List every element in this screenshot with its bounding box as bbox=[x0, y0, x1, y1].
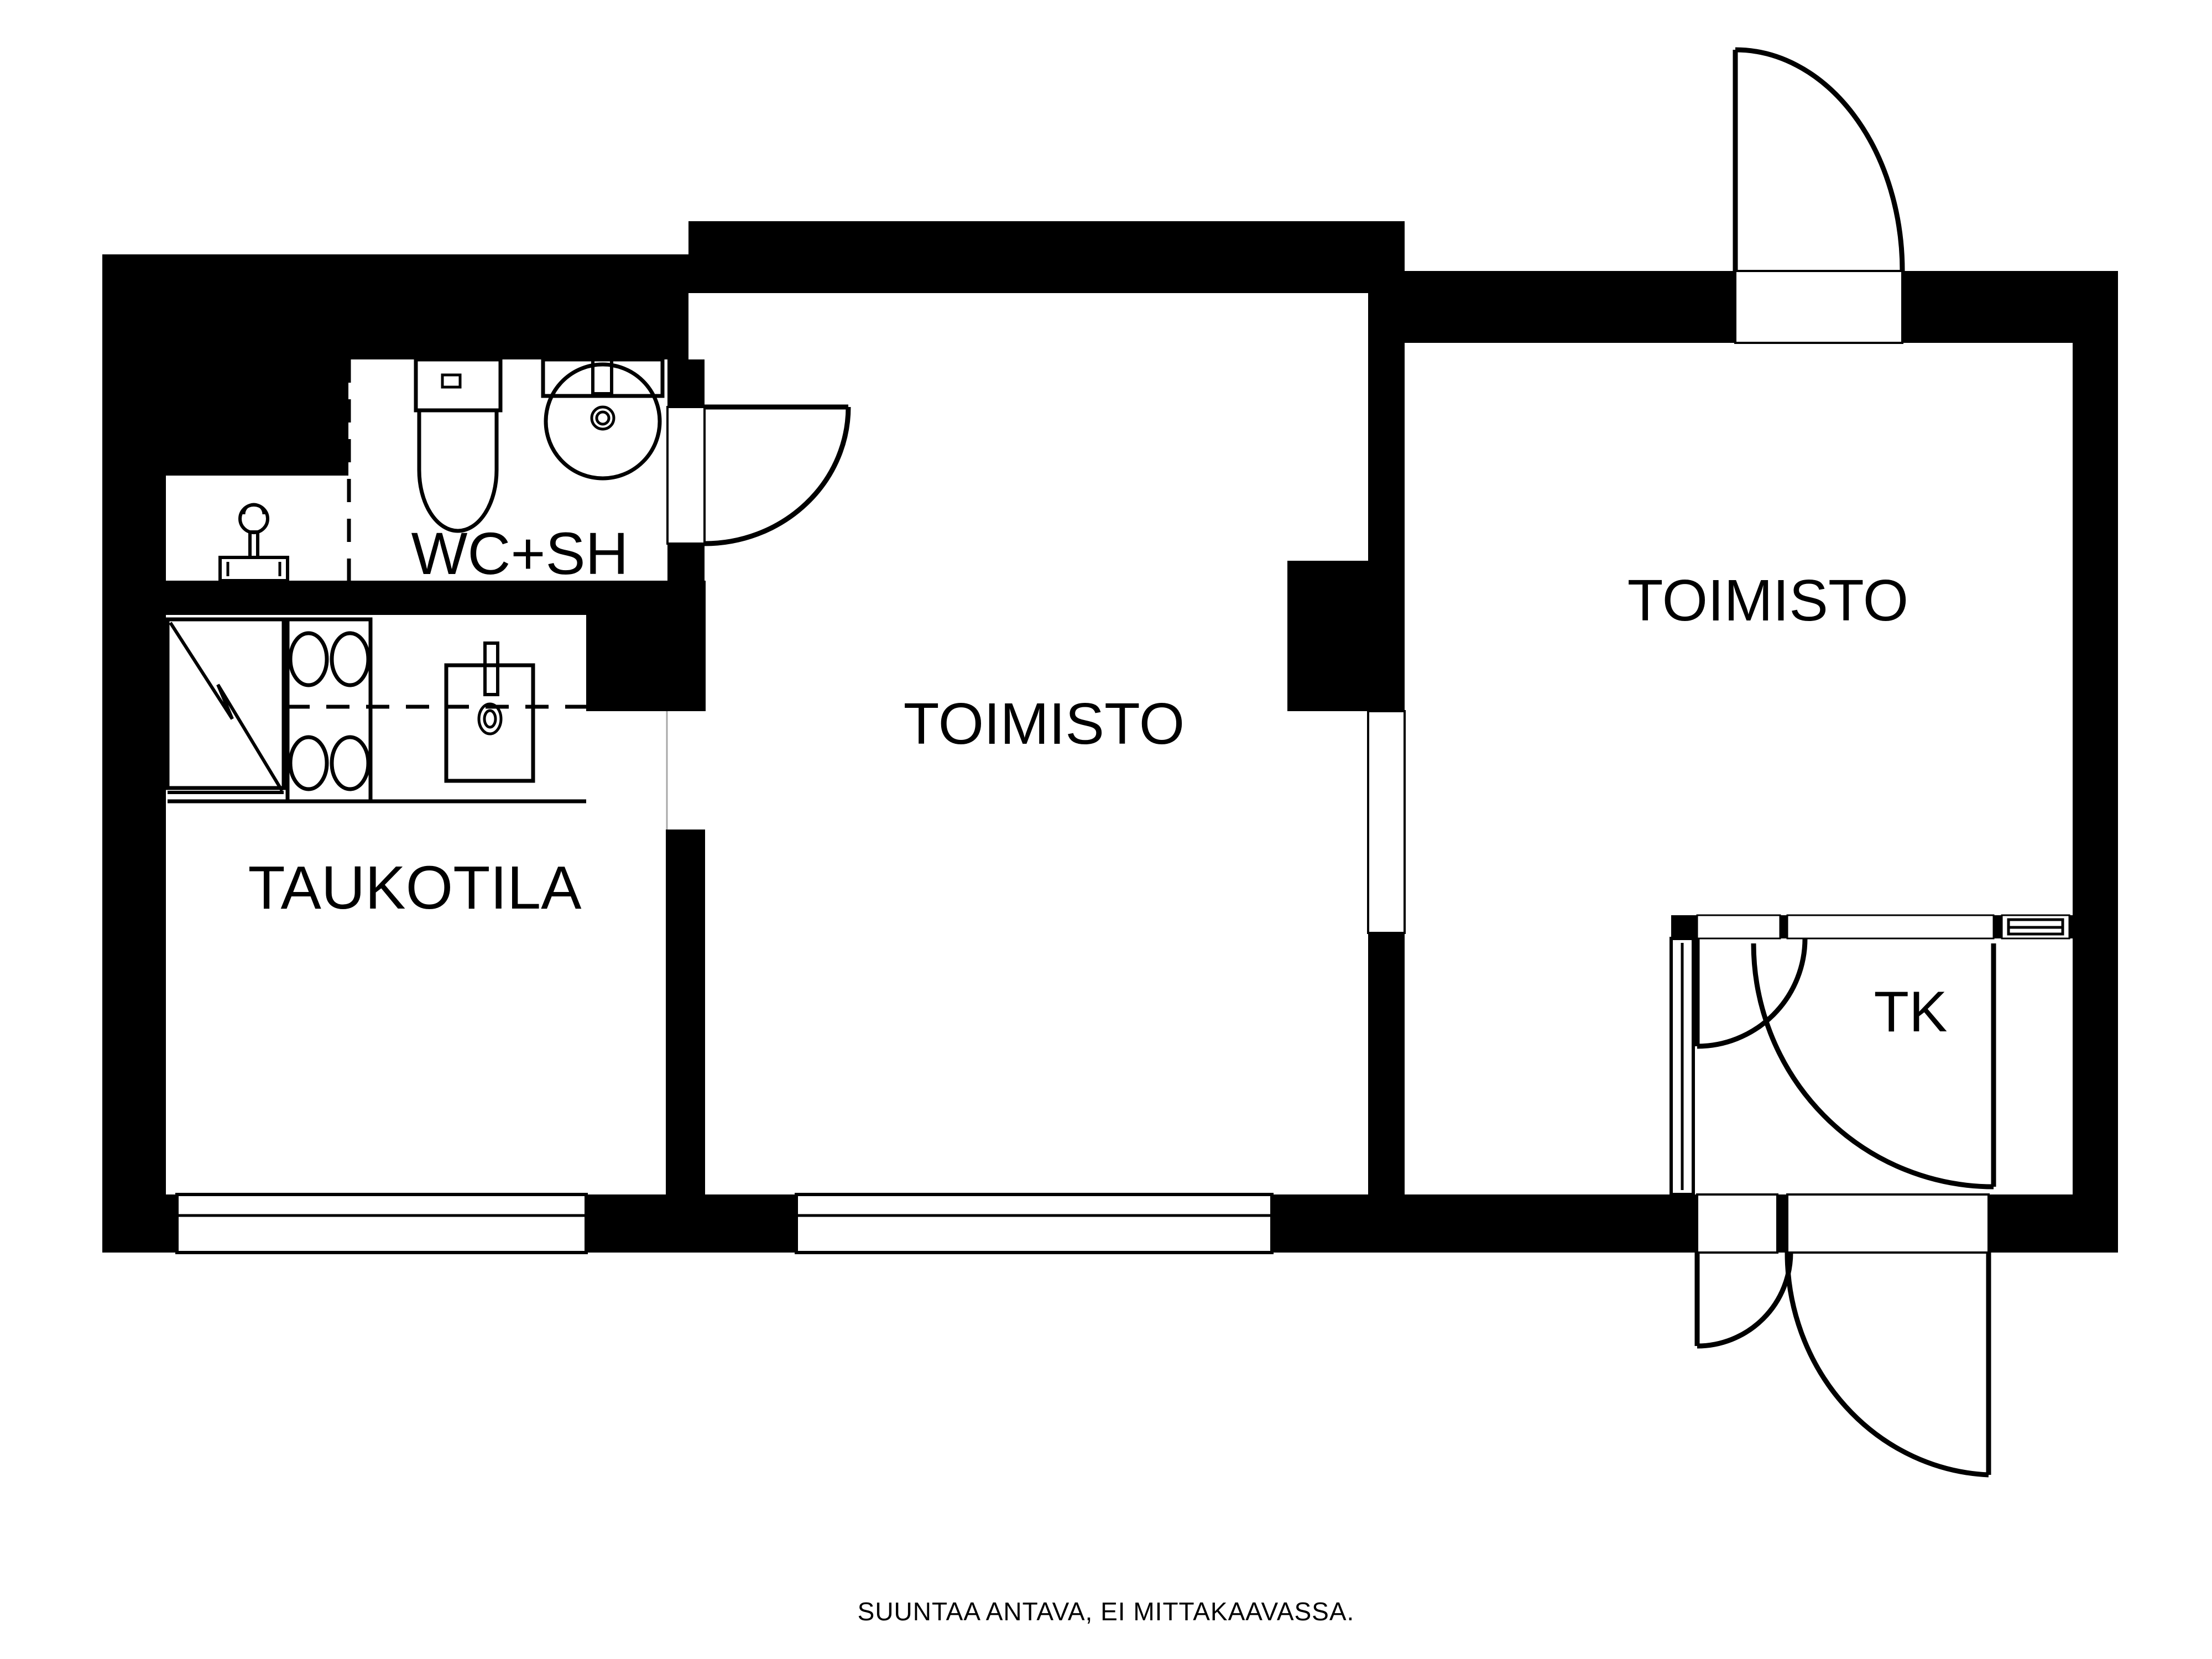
exterior-side-door-swing-icon bbox=[1697, 1253, 1791, 1346]
wall-divider-upper bbox=[1368, 293, 1405, 711]
room-label-toimisto-right: TOIMISTO bbox=[1627, 568, 1908, 633]
kitchen-sink-icon bbox=[446, 643, 533, 781]
toilet-icon bbox=[416, 359, 500, 531]
stove-icon bbox=[288, 619, 371, 801]
wall-bottom-d bbox=[1989, 1194, 2118, 1253]
wall-tk-band-pier-3 bbox=[1994, 915, 2002, 938]
tk-side-door-swing-icon bbox=[1697, 938, 1805, 1046]
wall-tk-band-pier-2 bbox=[1780, 915, 1787, 938]
refrigerator-icon bbox=[168, 619, 284, 792]
exterior-main-door-opening bbox=[1787, 1194, 1989, 1253]
room-label-tk: TK bbox=[1874, 980, 1948, 1044]
floorplan-page: WC+SH TOIMISTO TOIMISTO TAUKOTILA TK SUU… bbox=[0, 0, 2212, 1659]
openings bbox=[667, 271, 1994, 1253]
room-label-wc-sh: WC+SH bbox=[411, 520, 628, 587]
water-tap-icon bbox=[220, 504, 288, 581]
wall-bottom-a bbox=[102, 1194, 177, 1253]
wall-bottom-b bbox=[586, 1194, 796, 1253]
wall-top-middle-section bbox=[688, 221, 1405, 293]
exterior-main-door-swing-icon bbox=[1787, 1253, 1989, 1475]
wall-outer-left bbox=[102, 254, 166, 1253]
wall-bottom-c bbox=[1272, 1194, 1697, 1253]
kitchen bbox=[168, 619, 586, 801]
entry-door-opening bbox=[1735, 271, 1902, 343]
wall-kitchen-block bbox=[586, 581, 706, 711]
tk-side-door-opening bbox=[1697, 915, 1780, 938]
wall-top-right-a bbox=[1405, 271, 1735, 343]
window-icon-toimisto bbox=[796, 1194, 1272, 1253]
wall-bottom-door-jamb bbox=[1777, 1194, 1787, 1253]
office-divider-opening bbox=[1368, 711, 1405, 933]
washbasin-icon bbox=[543, 359, 662, 478]
window-icon-taukotila bbox=[177, 1194, 586, 1253]
tk-inner-door-opening bbox=[1787, 915, 1994, 938]
disclaimer-caption: SUUNTAA ANTAVA, EI MITTAKAAVASSA. bbox=[858, 1597, 1355, 1626]
entry-door-swing-icon bbox=[1735, 50, 1902, 271]
wall-tk-band-pier-1 bbox=[1671, 915, 1697, 938]
wall-divider-lower bbox=[1368, 933, 1405, 1194]
exterior-side-door-opening bbox=[1697, 1194, 1777, 1253]
floorplan-svg: WC+SH TOIMISTO TOIMISTO TAUKOTILA TK SUU… bbox=[0, 0, 2212, 1659]
wc-door-swing-icon bbox=[705, 407, 848, 544]
wall-wc-right-lower bbox=[667, 544, 705, 581]
wall-taukotila-pier bbox=[666, 830, 705, 1194]
room-label-taukotila: TAUKOTILA bbox=[248, 854, 582, 922]
wall-divider-stub bbox=[1287, 561, 1368, 711]
tk-corner-window-icon bbox=[2002, 915, 2069, 938]
room-label-toimisto-middle: TOIMISTO bbox=[904, 691, 1185, 757]
wall-outer-right bbox=[2073, 271, 2118, 1253]
sidelight-window-icon bbox=[1671, 938, 1693, 1194]
wall-wc-right-upper bbox=[667, 359, 705, 407]
wc-door-opening bbox=[667, 407, 705, 544]
wall-top-left-section bbox=[102, 254, 688, 359]
wall-corner-block bbox=[166, 359, 348, 476]
